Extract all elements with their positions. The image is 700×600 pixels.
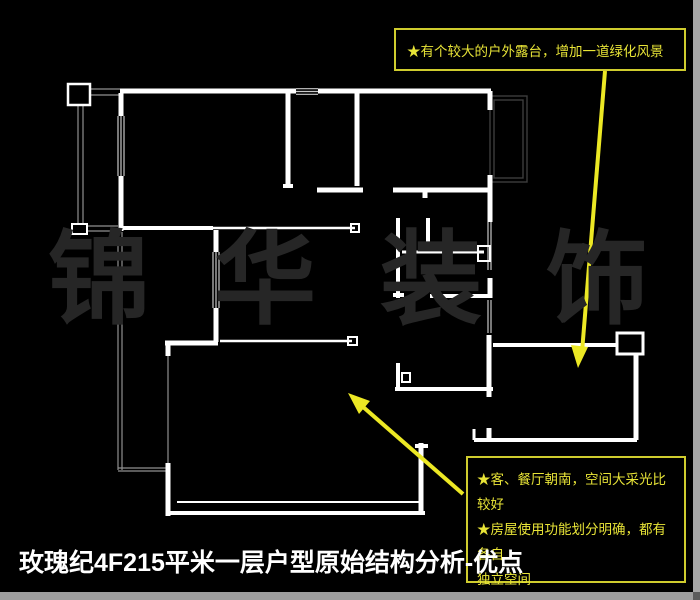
scroll-corner [693, 592, 700, 600]
wall-group [120, 91, 637, 516]
balcony-outline-group [490, 96, 527, 182]
terrace-note-box: ★有个较大的户外露台，增加一道绿化风景 [394, 28, 686, 71]
arrow-group [348, 71, 605, 494]
right-edge-scroll-strip[interactable] [693, 0, 700, 600]
floorplan-page: 锦华装饰 ★有个较大的户外露台，增加一道绿化风景 ★客、餐厅朝南，空间大采光比较… [0, 0, 700, 600]
advantages-note-line: ★客、餐厅朝南，空间大采光比较好 [477, 467, 678, 517]
bottom-edge-scroll-strip[interactable] [0, 592, 700, 600]
page-title: 玫瑰纪4F215平米一层户型原始结构分析-优点 [19, 543, 523, 579]
terrace-note-text: ★有个较大的户外露台，增加一道绿化风景 [407, 40, 664, 60]
thin-line-group [78, 89, 168, 471]
